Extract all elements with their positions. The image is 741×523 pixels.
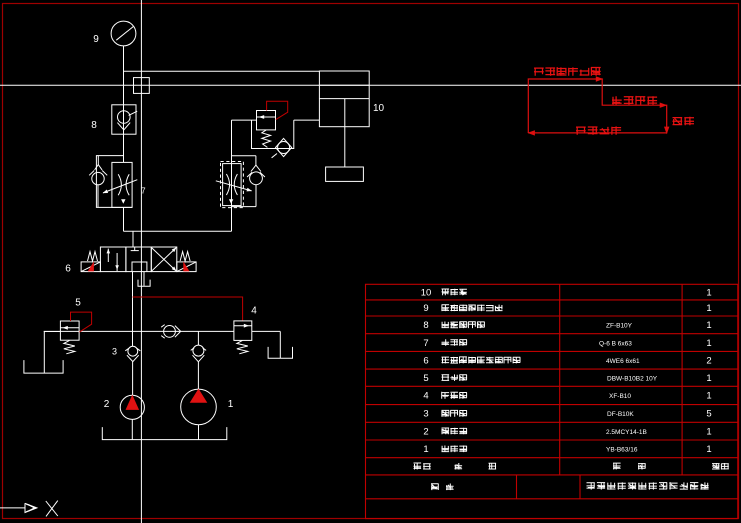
svg-text:2: 2 xyxy=(104,399,110,410)
svg-text:1: 1 xyxy=(706,444,711,455)
svg-text:10: 10 xyxy=(421,287,432,298)
svg-text:1: 1 xyxy=(706,338,711,349)
svg-text:4: 4 xyxy=(423,391,428,402)
svg-text:10: 10 xyxy=(373,103,385,114)
svg-text:3: 3 xyxy=(423,409,428,420)
svg-text:DBW-B10B2 10Y: DBW-B10B2 10Y xyxy=(607,375,658,382)
svg-text:7: 7 xyxy=(141,187,146,196)
svg-text:5: 5 xyxy=(423,373,428,384)
svg-text:1: 1 xyxy=(423,444,428,455)
svg-text:YB-B63/16: YB-B63/16 xyxy=(606,447,638,454)
svg-text:7: 7 xyxy=(423,338,428,349)
svg-text:5: 5 xyxy=(75,298,81,309)
svg-text:8: 8 xyxy=(91,120,97,131)
svg-text:1: 1 xyxy=(706,287,711,298)
svg-text:2.5MCY14-1B: 2.5MCY14-1B xyxy=(606,429,647,436)
svg-text:9: 9 xyxy=(93,34,99,45)
svg-text:XF-B10: XF-B10 xyxy=(609,393,631,400)
svg-text:9: 9 xyxy=(423,303,428,314)
svg-text:1: 1 xyxy=(706,391,711,402)
svg-text:6: 6 xyxy=(65,264,71,275)
svg-text:1: 1 xyxy=(228,399,234,410)
svg-text:Q-6 B 6x63: Q-6 B 6x63 xyxy=(599,340,632,347)
svg-text:6: 6 xyxy=(423,355,428,366)
svg-text:1: 1 xyxy=(706,303,711,314)
svg-text:ZF-B10Y: ZF-B10Y xyxy=(606,323,633,330)
svg-text:5: 5 xyxy=(706,409,711,420)
svg-text:4: 4 xyxy=(251,306,257,317)
svg-text:1: 1 xyxy=(706,373,711,384)
svg-text:2: 2 xyxy=(706,355,711,366)
svg-text:2: 2 xyxy=(423,426,428,437)
svg-text:DF-B10K: DF-B10K xyxy=(607,411,634,418)
svg-text:1: 1 xyxy=(706,426,711,437)
svg-text:1: 1 xyxy=(706,320,711,331)
svg-text:3: 3 xyxy=(112,347,117,357)
svg-text:8: 8 xyxy=(423,320,428,331)
svg-text:4WE6 6x61: 4WE6 6x61 xyxy=(606,358,640,365)
